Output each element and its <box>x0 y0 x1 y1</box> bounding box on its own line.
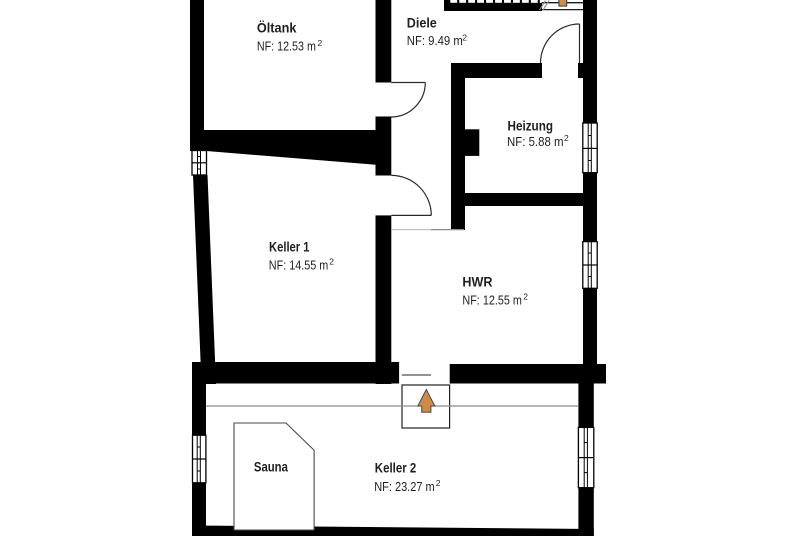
svg-text:2: 2 <box>329 256 334 266</box>
svg-text:NF: 12.53 m: NF: 12.53 m <box>257 39 316 54</box>
svg-text:HWR: HWR <box>462 275 492 290</box>
svg-text:NF: 12.55 m: NF: 12.55 m <box>462 292 522 307</box>
svg-text:2: 2 <box>523 292 528 302</box>
svg-text:2: 2 <box>462 32 467 42</box>
svg-text:NF: 9.49 m: NF: 9.49 m <box>407 33 463 48</box>
svg-text:Keller 1: Keller 1 <box>269 240 310 255</box>
svg-text:Keller 2: Keller 2 <box>375 460 417 475</box>
svg-text:Öltank: Öltank <box>257 21 297 36</box>
svg-text:Heizung: Heizung <box>508 119 554 134</box>
svg-text:2: 2 <box>436 478 441 488</box>
svg-text:Diele: Diele <box>407 16 437 31</box>
svg-text:2: 2 <box>564 133 569 143</box>
svg-text:Sauna: Sauna <box>254 460 288 475</box>
svg-text:NF: 23.27 m: NF: 23.27 m <box>374 479 435 494</box>
svg-text:NF: 5.88 m: NF: 5.88 m <box>507 134 564 149</box>
svg-text:2: 2 <box>318 38 323 48</box>
svg-text:NF: 14.55 m: NF: 14.55 m <box>269 257 329 272</box>
